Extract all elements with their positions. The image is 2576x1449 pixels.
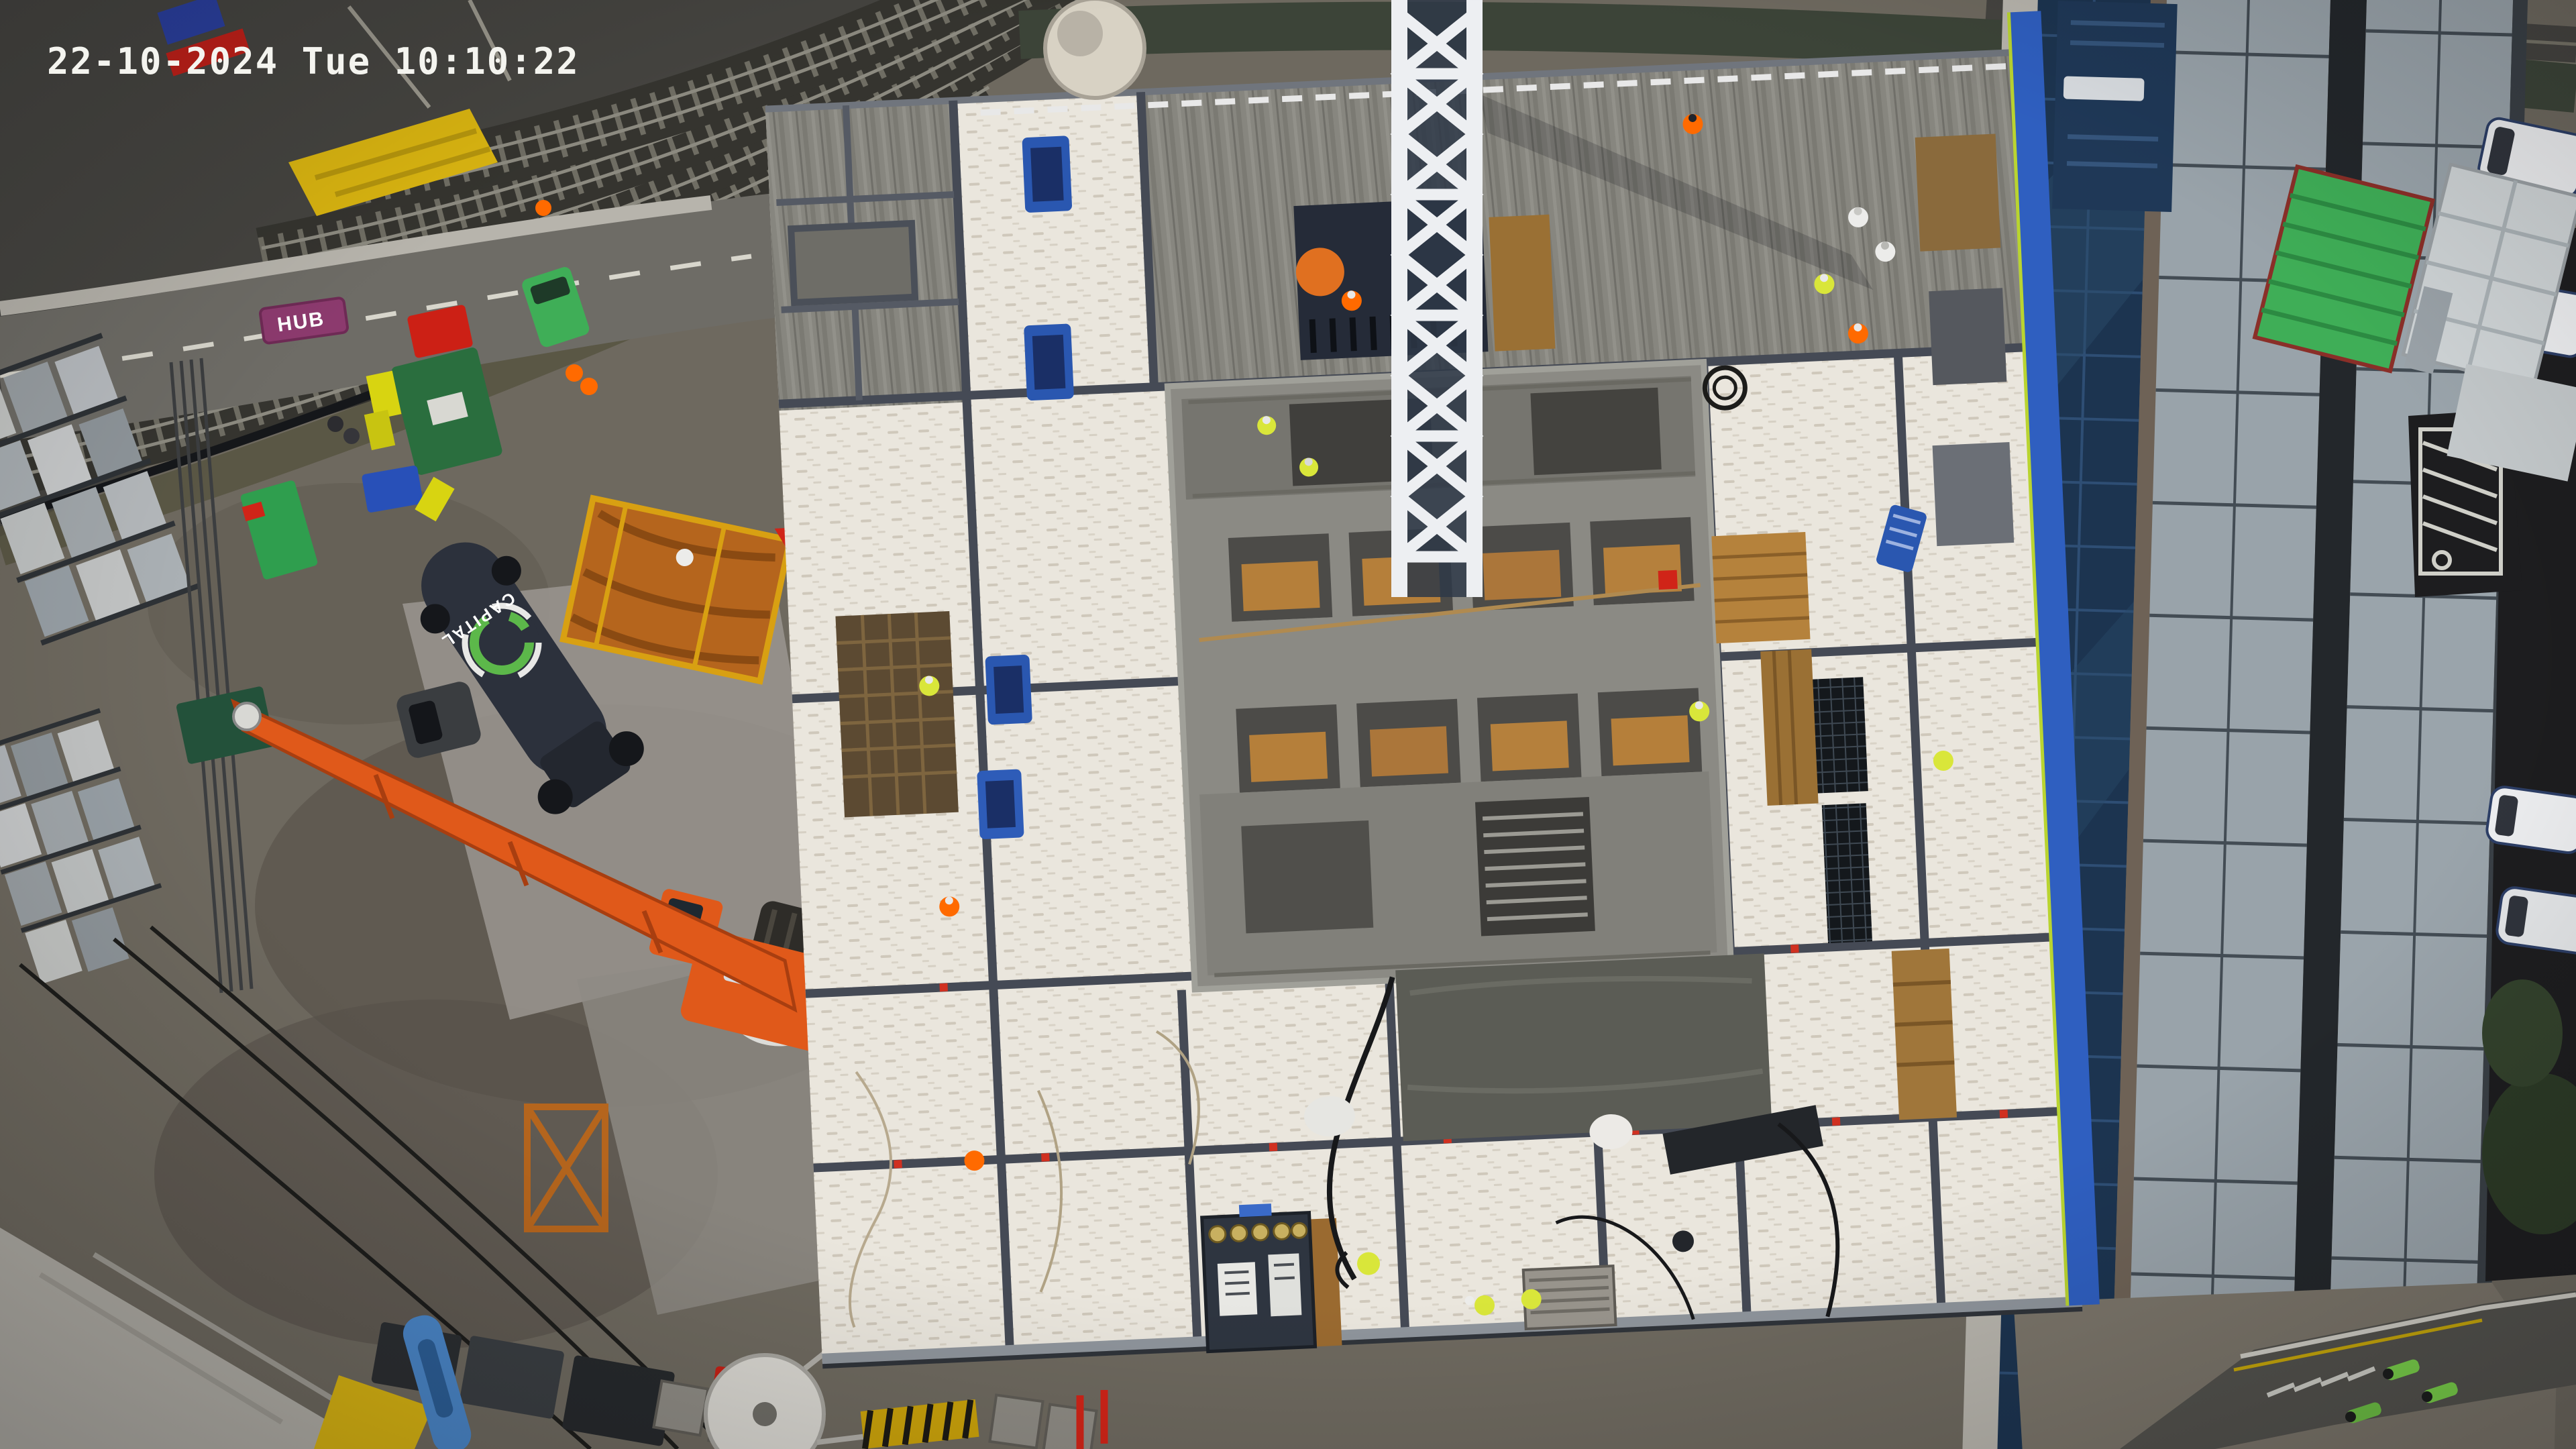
lens-vignette bbox=[0, 0, 2576, 1449]
timestamp-overlay: 22-10-2024 Tue 10:10:22 bbox=[47, 40, 580, 83]
cctv-frame: HUB bbox=[0, 0, 2576, 1449]
construction-site-scene: HUB bbox=[0, 0, 2576, 1449]
